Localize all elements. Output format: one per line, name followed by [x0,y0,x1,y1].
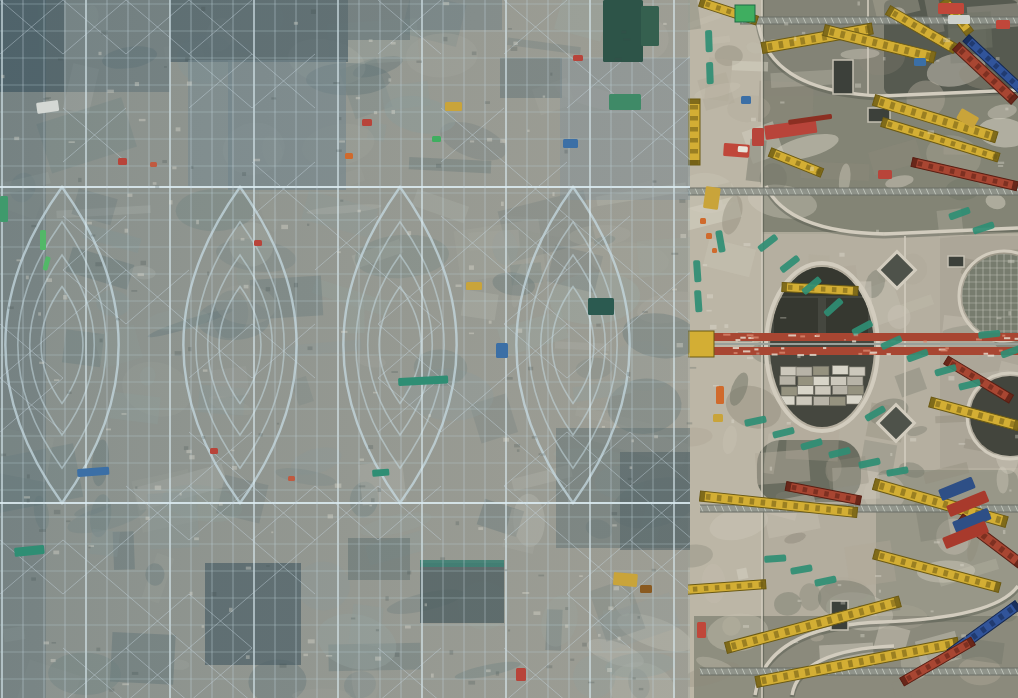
deck-pit [948,256,964,267]
site-equipment [878,170,892,179]
truss-highlight [788,334,796,336]
speckle [602,426,605,428]
speckle [26,276,29,280]
speckle [652,569,656,572]
speckle [132,672,138,675]
speckle [229,608,232,612]
speckle [254,159,260,162]
boom-lacing [771,501,776,507]
speckle [164,66,167,68]
speckle [998,165,1003,167]
speckle [27,474,30,478]
material-pallet [813,366,829,375]
material-pallet [830,397,846,406]
site-equipment [345,153,353,159]
speckle [838,584,842,586]
material-pallet [796,367,812,376]
concrete-patch [844,540,896,588]
speckle [910,438,916,441]
speckle [533,611,540,615]
truss-highlight [810,354,817,356]
speckle [91,234,96,236]
speckle [632,677,635,679]
truss-highlight [751,337,759,339]
speckle [189,455,194,459]
speckle [959,443,966,445]
speckle [337,251,341,253]
speckle [232,466,237,470]
speckle [607,668,612,672]
speckle [440,557,445,560]
truss-highlight [887,353,891,355]
boom-lacing [824,491,829,497]
speckle [671,253,678,255]
site-equipment [752,128,764,146]
truss-highlight [743,350,750,352]
boom-lacing [837,507,842,513]
speckle [672,289,677,291]
site-equipment [573,55,583,61]
speckle [517,449,520,452]
speckle [203,369,208,371]
speckle [58,58,63,60]
speckle [146,517,150,520]
truss-highlight [1004,337,1010,339]
speckle [31,577,36,580]
speckle [456,521,459,525]
speckle [138,273,144,276]
speckle [627,372,630,376]
speckle [303,654,308,657]
speckle [784,22,788,25]
speckle [335,483,342,487]
speckle [308,346,313,350]
speckle [66,520,70,522]
speckle [890,453,892,456]
speckle [508,28,512,30]
speckle [787,422,791,425]
speckle [395,652,399,656]
speckle [27,499,30,503]
site-equipment [613,572,638,587]
speckle [883,57,885,60]
speckle [376,629,379,631]
boom-lacing [821,287,826,292]
speckle [201,7,205,11]
speckle [875,575,881,577]
speckle [550,73,552,76]
boom-lacing [845,495,850,501]
speckle [391,371,398,373]
speckle [425,603,427,606]
speckle [936,60,939,62]
speckle [604,353,607,355]
speckle [546,665,552,668]
site-equipment [996,20,1010,29]
speckle [687,422,693,424]
speckle [997,317,1002,319]
truss-highlight [941,349,948,351]
scaffold-tint [0,0,690,698]
boom-lacing [791,485,796,491]
speckle [326,655,332,657]
material-pallet [780,367,796,376]
speckle [45,97,50,99]
boom-lacing [802,487,807,493]
speckle [96,648,100,652]
boom-lacing [832,287,837,292]
site-equipment [706,233,712,239]
speckle [663,23,666,25]
speckle [127,194,132,197]
deck-pit [833,60,853,94]
speckle [621,30,626,33]
speckle [998,162,1005,164]
speckle [565,624,568,627]
truss-highlight [823,347,826,349]
speckle [489,321,492,324]
speckle [368,445,373,449]
material-pallet [848,386,864,395]
speckle [579,575,583,577]
speckle [407,571,411,575]
speckle [1,454,6,457]
speckle [196,220,199,224]
speckle [371,498,375,502]
speckle [810,167,814,171]
safety-walkway-strip [705,30,713,52]
speckle [341,331,347,333]
site-equipment [741,96,751,104]
site-equipment [703,186,721,210]
speckle [608,606,613,610]
truss-highlight [863,350,870,352]
speckle [797,355,800,358]
boom-end [852,507,858,517]
speckle [841,601,846,604]
site-equipment [496,343,508,358]
deck-zone [654,0,1018,698]
speckle [637,616,639,619]
speckle [802,32,805,34]
speckle [155,486,161,490]
material-pallet [796,396,812,405]
speckle [407,231,411,235]
speckle [1003,530,1005,534]
site-equipment [0,196,8,222]
speckle [860,634,864,637]
speckle [527,130,529,132]
speckle [135,82,139,86]
material-pallet [798,376,814,385]
speckle [188,347,191,351]
speckle [794,641,798,643]
speckle [518,329,522,333]
speckle [241,238,245,241]
speckle [333,82,339,84]
speckle [106,429,111,431]
pit-shadow [774,298,818,336]
boom-lacing [690,105,698,110]
speckle [756,353,759,355]
boom-lacing [728,496,733,502]
speckle [340,200,343,202]
truss-highlight [734,352,738,354]
speckle [552,192,554,196]
speckle [436,164,441,168]
speckle [780,101,784,103]
speckle [98,52,101,55]
speckle [131,290,137,292]
material-pallet [781,387,797,396]
speckle [47,278,53,282]
boom-lacing [693,586,698,591]
speckle [186,450,191,453]
speckle [266,565,269,567]
speckle [101,30,108,34]
speckle [570,659,574,661]
site-equipment [445,102,462,111]
speckle [456,284,462,286]
speckle [879,590,881,593]
speckle [175,351,182,355]
speckle [679,199,685,203]
speckle [707,294,713,298]
speckle [294,283,298,287]
boom-lacing [793,503,798,509]
speckle [855,83,861,87]
material-pallet [832,365,848,374]
truss-highlight [870,352,877,354]
speckle [612,524,617,526]
speckle [39,362,44,364]
speckle [431,674,434,678]
site-equipment [640,585,652,593]
speckle [139,119,146,121]
speckle [511,47,518,51]
speckle [468,681,475,685]
speckle [469,265,474,269]
site-equipment [372,469,390,477]
speckle [469,333,474,335]
truss-highlight [976,338,982,340]
site-equipment [118,158,127,165]
speckle [565,607,568,610]
speckle [630,466,633,469]
speckle [1005,108,1008,111]
speckle [690,367,696,369]
site-equipment [738,146,748,153]
speckle [125,229,129,233]
speckle [176,127,181,131]
speckle [747,357,753,359]
speckle [1009,489,1011,491]
speckle [388,78,391,81]
speckle [53,551,59,555]
speckle [24,496,30,498]
speckle [95,262,102,266]
speckle [428,414,430,417]
speckle [928,130,934,133]
speckle [375,657,381,661]
speckle [162,160,167,163]
boom-lacing [804,504,809,510]
speckle [246,655,250,659]
speckle [307,224,309,226]
boom-lacing [706,494,711,500]
truss-highlight [779,352,785,354]
speckle [100,339,103,343]
boom-lacing [815,505,820,511]
speckle [794,36,796,40]
speckle [496,671,499,675]
speckle [528,367,533,371]
speckle [109,688,114,691]
speckle [122,413,127,415]
speckle [141,261,146,265]
speckle [69,141,75,143]
speckle [639,688,644,690]
material-pallet [847,377,863,386]
speckle [857,1,859,5]
speckle [876,230,879,233]
boom-lacing [690,149,698,154]
speckle [598,634,601,637]
speckle [194,537,199,540]
speckle [271,531,273,533]
speckle [680,234,686,238]
truss-highlight [816,334,820,336]
speckle [328,514,333,518]
site-equipment [516,668,526,681]
site-equipment [609,94,641,110]
speckle [169,200,172,204]
speckle [596,324,600,327]
site-equipment [697,622,706,638]
speckle [31,225,36,227]
boom-end [782,283,787,292]
speckle [615,58,622,60]
speckle [52,642,56,644]
truss-highlight [945,347,949,349]
speckle [948,376,954,380]
speckle [246,567,251,570]
speckle [503,438,509,442]
speckle [339,140,345,142]
site-equipment [948,15,970,24]
speckle [211,592,216,596]
material-pallet [797,386,813,395]
speckle [187,82,192,86]
speckle [618,637,621,641]
speckle [538,575,544,577]
speckle [505,569,508,571]
speckle [339,117,341,120]
speckle [564,150,567,154]
speckle [485,101,490,104]
speckle [385,596,388,600]
boom-lacing [690,138,698,143]
speckle [642,311,647,313]
speckle [470,140,474,142]
truss-highlight [1015,338,1018,340]
site-equipment [40,230,46,250]
site-equipment [466,282,482,290]
speckle [373,392,377,394]
boom-lacing [748,583,753,588]
boom-lacing [760,499,765,505]
boom-lacing [726,584,731,589]
speckle [202,436,205,439]
material-pallet [832,385,848,394]
site-equipment [914,58,926,66]
site-equipment [588,298,614,315]
site-equipment [362,119,372,126]
truss-highlight [754,348,758,350]
speckle [744,243,751,246]
speckle [207,272,209,276]
boom-lacing [826,506,831,512]
speckle [351,618,355,620]
speckle [844,339,846,341]
construction-site-photo [0,0,1018,698]
speckle [522,592,529,594]
speckle [628,478,632,480]
speckle [116,318,120,321]
speckle [624,38,631,40]
site-equipment [700,218,706,224]
speckle [44,641,49,644]
speckle [78,178,81,182]
speckle [443,37,447,41]
speckle [501,202,504,206]
speckle [931,610,934,612]
site-equipment [210,448,218,454]
safety-walkway-strip [706,62,714,84]
material-pallet [780,376,796,385]
speckle [184,446,188,450]
speckle [153,182,157,185]
speckle [242,172,246,176]
speckle [271,97,276,99]
speckle [392,110,395,114]
speckle [356,97,360,99]
speckle [450,650,454,654]
speckle [88,546,90,549]
truss-highlight [852,340,856,342]
boom-end [699,491,705,501]
site-equipment [938,3,964,14]
truss-highlight [781,347,784,349]
speckle [780,317,786,319]
speckle [798,600,802,602]
speckle [155,186,159,189]
speckle [38,312,41,315]
speckle [39,529,46,532]
speckle [259,433,263,436]
speckle [677,343,683,347]
truss-highlight [772,353,778,355]
speckle [653,180,657,182]
truss-highlight [733,347,739,349]
speckle [961,634,966,637]
speckle [713,385,719,387]
truss-highlight [800,335,805,337]
speckle [294,22,298,25]
speckle [751,118,756,122]
speckle [507,377,513,380]
speckle [202,625,205,628]
